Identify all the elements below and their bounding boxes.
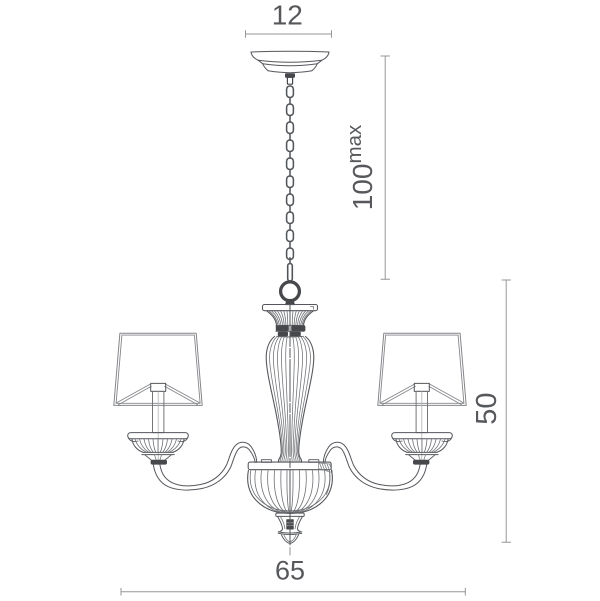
- svg-text:50: 50: [471, 393, 503, 425]
- svg-text:100: 100: [347, 164, 378, 211]
- svg-text:max: max: [343, 124, 366, 163]
- svg-text:65: 65: [275, 556, 305, 586]
- svg-text:12: 12: [272, 0, 303, 31]
